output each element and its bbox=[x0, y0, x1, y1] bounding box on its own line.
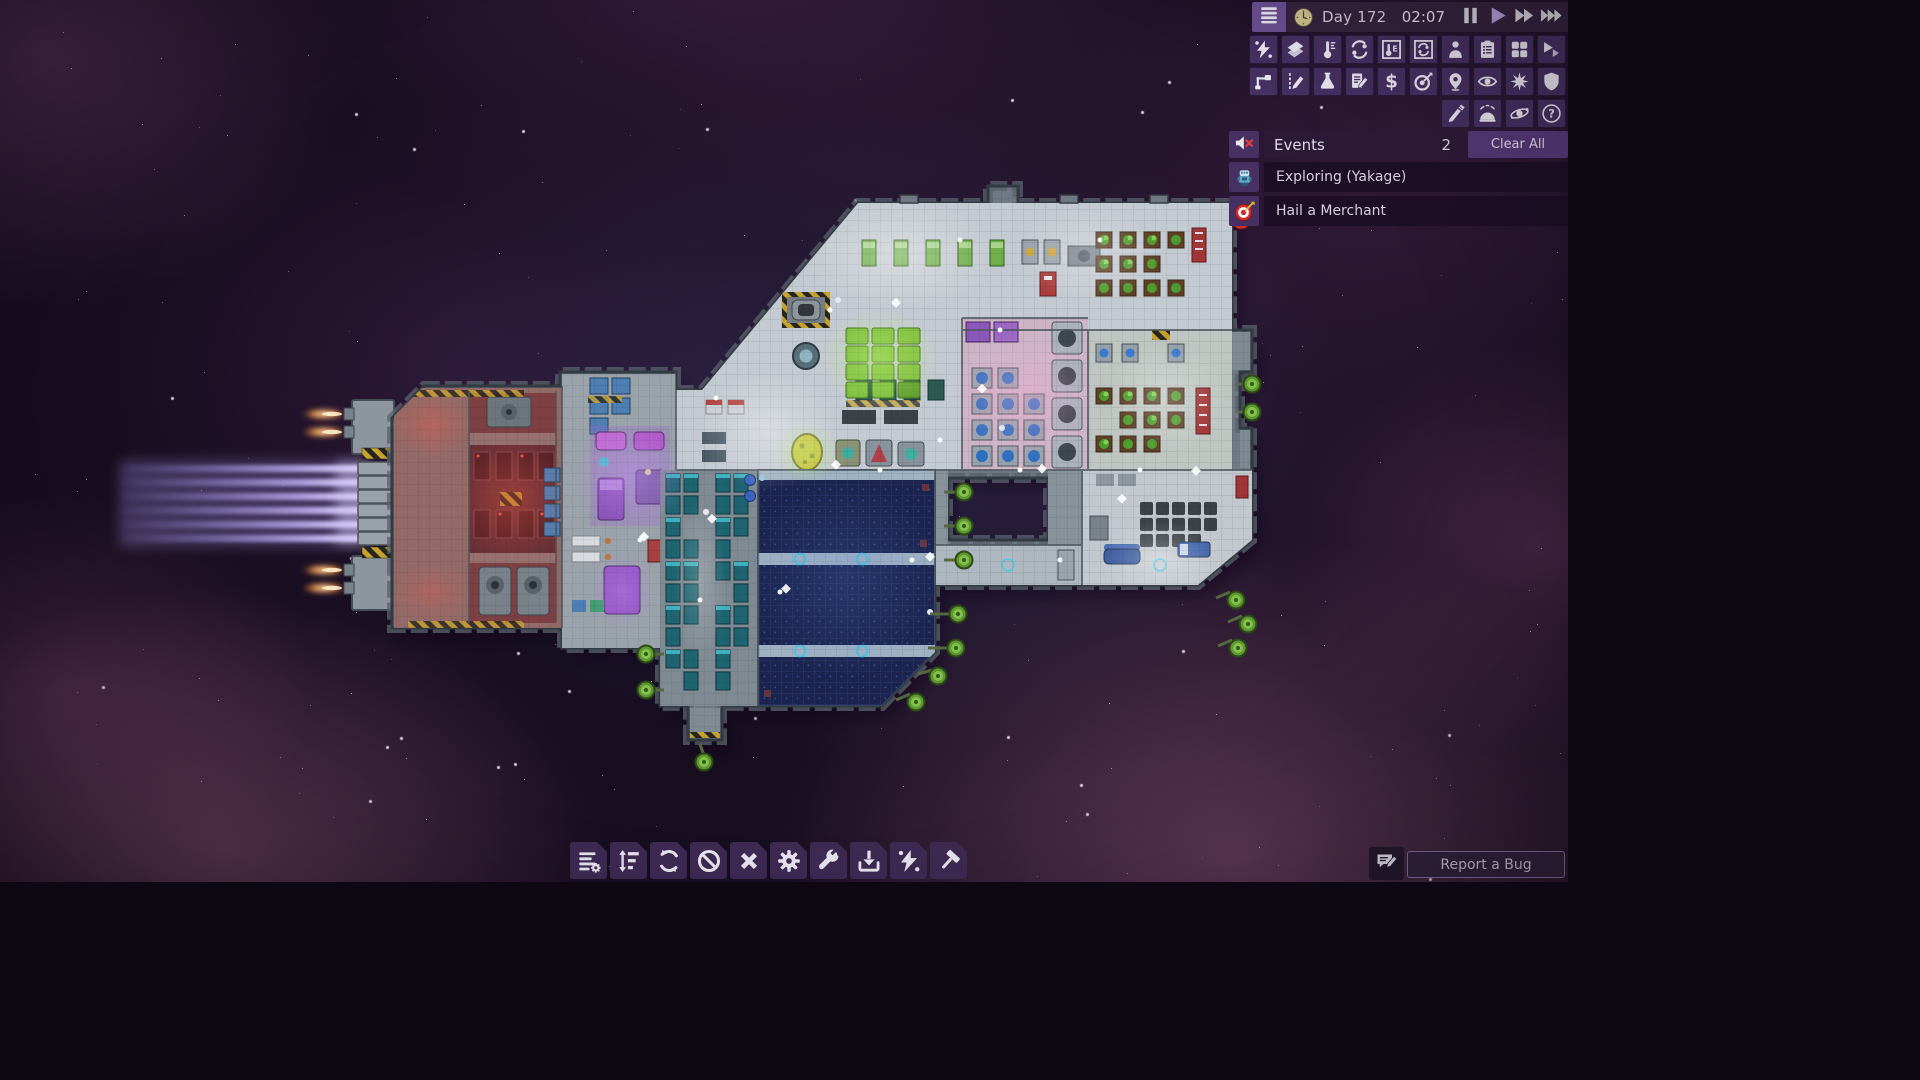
forbid-button[interactable] bbox=[690, 842, 727, 879]
shields-view-button[interactable] bbox=[1537, 67, 1566, 96]
priority-bars-icon bbox=[616, 848, 642, 874]
bolt-dots-icon bbox=[896, 848, 922, 874]
wrench-icon bbox=[816, 848, 842, 874]
customize-button[interactable] bbox=[1441, 99, 1470, 128]
deconstruct-button[interactable] bbox=[730, 842, 767, 879]
hammer-icon bbox=[936, 848, 962, 874]
ff2-icon bbox=[1513, 4, 1536, 31]
target-dart-icon bbox=[1413, 71, 1434, 92]
storage-view-button[interactable] bbox=[1505, 35, 1534, 64]
events-title: Events bbox=[1274, 136, 1325, 154]
fast-forward-button[interactable] bbox=[1511, 4, 1537, 30]
pencil-dashed-icon bbox=[1285, 71, 1306, 92]
build-button[interactable] bbox=[930, 842, 967, 879]
event-label: Exploring (Yakage) bbox=[1264, 162, 1568, 192]
rotate-button[interactable] bbox=[650, 842, 687, 879]
event-row[interactable]: Hail a Merchant bbox=[1229, 196, 1568, 226]
schedule-view-button[interactable] bbox=[1473, 35, 1502, 64]
combat-view-button[interactable] bbox=[1505, 67, 1534, 96]
play-button[interactable] bbox=[1484, 4, 1510, 30]
events-panel: Events 2 Clear All Exploring (Yakage)Hai… bbox=[1229, 131, 1568, 230]
menu-button[interactable] bbox=[1252, 2, 1286, 32]
navigation-view-button[interactable] bbox=[1441, 67, 1470, 96]
temperature-view-button[interactable] bbox=[1313, 35, 1342, 64]
gas-box-icon bbox=[1413, 39, 1434, 60]
power-button[interactable] bbox=[890, 842, 927, 879]
crew-view-button[interactable] bbox=[1441, 35, 1470, 64]
system-view-button[interactable] bbox=[1505, 99, 1534, 128]
menu-icon bbox=[1258, 4, 1280, 30]
trade-view-button[interactable]: $ bbox=[1377, 67, 1406, 96]
view-toolbar-row-3: ? bbox=[1441, 99, 1566, 128]
brush-icon bbox=[1445, 103, 1466, 124]
chat-pencil-icon bbox=[1375, 850, 1399, 878]
temperature-overlay-button[interactable]: E bbox=[1377, 35, 1406, 64]
priorities-button[interactable] bbox=[610, 842, 647, 879]
no-entry-icon bbox=[696, 848, 722, 874]
map-pin-icon bbox=[1445, 71, 1466, 92]
dollar-icon: $ bbox=[1381, 71, 1402, 92]
build-toolbar bbox=[570, 842, 967, 879]
events-header: Events 2 Clear All bbox=[1229, 131, 1568, 158]
orbit-icon bbox=[1509, 103, 1530, 124]
missions-view-button[interactable] bbox=[1409, 67, 1438, 96]
person-icon bbox=[1445, 39, 1466, 60]
time-display: 02:07 bbox=[1402, 8, 1445, 26]
help-button[interactable]: ? bbox=[1537, 99, 1566, 128]
speaker-mute-icon bbox=[1233, 132, 1255, 158]
gas-overlay-button[interactable] bbox=[1409, 35, 1438, 64]
shuttle-view-button[interactable] bbox=[1537, 35, 1566, 64]
thermometer-box-icon: E bbox=[1381, 39, 1402, 60]
speed-controls bbox=[1457, 4, 1564, 30]
bolt-dots-icon bbox=[1253, 39, 1274, 60]
report-bug-button-icon-tile[interactable] bbox=[1369, 847, 1404, 880]
starburst-icon bbox=[1509, 71, 1530, 92]
play-icon bbox=[1486, 4, 1509, 31]
power-view-button[interactable] bbox=[1249, 35, 1278, 64]
observe-view-button[interactable] bbox=[1473, 67, 1502, 96]
fastest-forward-button[interactable] bbox=[1538, 4, 1564, 30]
event-row[interactable]: Exploring (Yakage) bbox=[1229, 162, 1568, 192]
layers-icon bbox=[1285, 39, 1306, 60]
dome-waves-icon bbox=[1477, 103, 1498, 124]
explorer-sprite-icon bbox=[1229, 162, 1259, 192]
list-gear-icon bbox=[576, 848, 602, 874]
events-list: Exploring (Yakage)Hail a Merchant bbox=[1229, 162, 1568, 226]
pause-icon bbox=[1459, 4, 1482, 31]
svg-text:E: E bbox=[1392, 45, 1397, 54]
flask-icon bbox=[1317, 71, 1338, 92]
view-toolbar-row-1: E bbox=[1249, 35, 1566, 64]
pause-button[interactable] bbox=[1457, 4, 1483, 30]
research-view-button[interactable] bbox=[1313, 67, 1342, 96]
game-screen: Day 172 02:07 E $ ? Events 2 Clear All E… bbox=[0, 0, 1568, 882]
settings-button[interactable] bbox=[770, 842, 807, 879]
ff3-icon bbox=[1540, 4, 1563, 31]
view-toolbar-row-2: $ bbox=[1249, 67, 1566, 96]
gas-view-button[interactable] bbox=[1345, 35, 1374, 64]
shield-icon bbox=[1541, 71, 1562, 92]
mute-events-button[interactable] bbox=[1229, 131, 1259, 158]
report-bug: Report a Bug bbox=[1369, 847, 1565, 880]
conduit-icon bbox=[1253, 71, 1274, 92]
report-bug-button[interactable]: Report a Bug bbox=[1407, 851, 1565, 878]
repair-button[interactable] bbox=[810, 842, 847, 879]
gas-icon bbox=[1349, 39, 1370, 60]
engine-thrust-beams bbox=[118, 460, 368, 547]
clipboard-icon bbox=[1477, 39, 1498, 60]
data-logs-button[interactable] bbox=[1345, 67, 1374, 96]
events-title-bar: Events 2 bbox=[1264, 131, 1461, 158]
svg-text:?: ? bbox=[1548, 107, 1555, 121]
rotate-arrows-icon bbox=[656, 848, 682, 874]
conduits-view-button[interactable] bbox=[1249, 67, 1278, 96]
clock-icon bbox=[1293, 7, 1314, 28]
eye-icon bbox=[1477, 71, 1498, 92]
events-count: 2 bbox=[1441, 136, 1451, 154]
doc-pencil-icon bbox=[1349, 71, 1370, 92]
cancel-x-icon bbox=[736, 848, 762, 874]
install-arrow-icon bbox=[856, 848, 882, 874]
hull-view-button[interactable] bbox=[1281, 35, 1310, 64]
question-icon: ? bbox=[1541, 103, 1562, 124]
clear-all-button[interactable]: Clear All bbox=[1468, 131, 1568, 158]
grid4-icon bbox=[1509, 39, 1530, 60]
day-label: Day 172 bbox=[1322, 8, 1386, 26]
thermometer-icon bbox=[1317, 39, 1338, 60]
target-red-icon bbox=[1229, 196, 1259, 226]
gear-icon bbox=[776, 848, 802, 874]
event-label: Hail a Merchant bbox=[1264, 196, 1568, 226]
svg-text:$: $ bbox=[1385, 72, 1398, 92]
time-panel: Day 172 02:07 bbox=[1252, 2, 1568, 32]
manage-list-button[interactable] bbox=[570, 842, 607, 879]
install-button[interactable] bbox=[850, 842, 887, 879]
shuttle-icon bbox=[1541, 39, 1562, 60]
time-bar: Day 172 02:07 bbox=[1286, 2, 1568, 32]
draw-plan-button[interactable] bbox=[1281, 67, 1310, 96]
hypersleep-view-button[interactable] bbox=[1473, 99, 1502, 128]
